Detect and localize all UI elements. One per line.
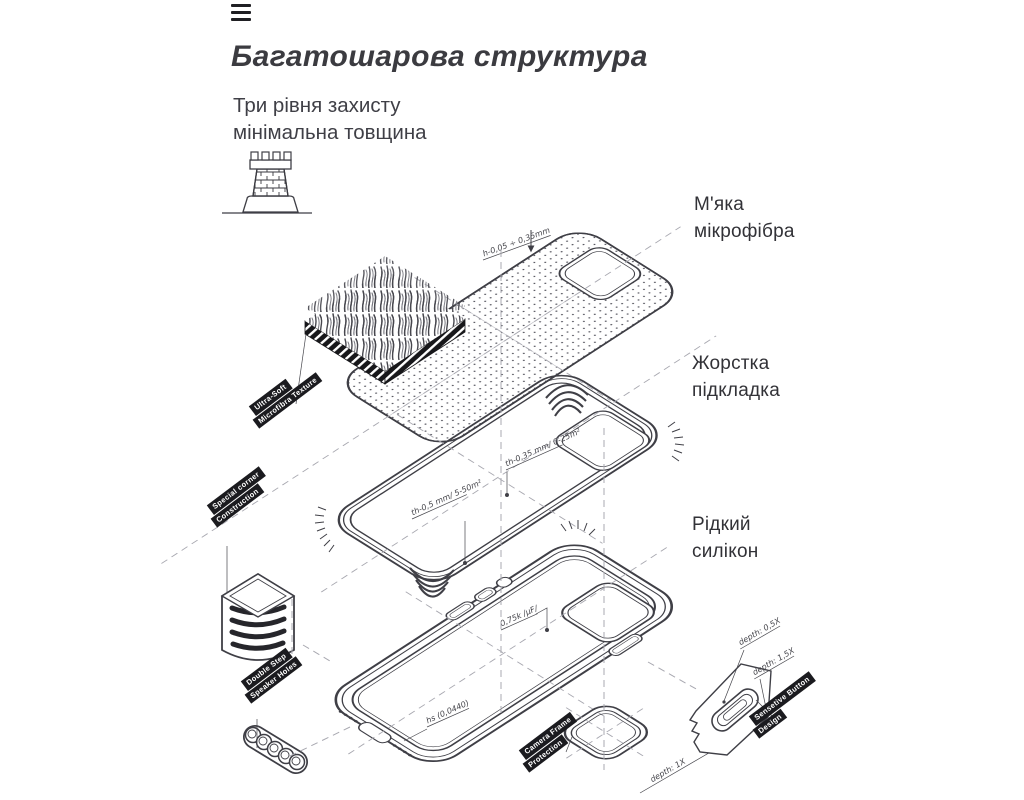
note-button-depth-1: depth: 0,5X xyxy=(735,616,783,649)
svg-text:depth: 0,5X: depth: 0,5X xyxy=(737,616,782,647)
detail-speaker-strip xyxy=(246,719,305,770)
case-button-cutouts xyxy=(444,576,515,622)
note-case-buttons: 0,75k /µF/ xyxy=(497,603,541,630)
note-shell-thickness: th-0,5 mm/ 5-50m² xyxy=(408,478,484,519)
detail-corner-construction xyxy=(222,546,294,660)
svg-text:depth: 1,5X: depth: 1,5X xyxy=(751,646,796,677)
case-corner-hatch xyxy=(561,520,595,535)
fortress-icon xyxy=(222,152,312,213)
exploded-case-diagram: h-0,05 ÷ 0,35mm xyxy=(0,0,1024,800)
svg-text:hs (0,0440): hs (0,0440) xyxy=(425,698,471,725)
layer-silicone-case: 0,75k /µF/ hs (0,0440) xyxy=(250,485,768,800)
detail-sensitive-button: depth: 0,5X depth: 1,5X xyxy=(690,616,797,755)
layer-microfiber-sheet: h-0,05 ÷ 0,35mm xyxy=(66,167,781,627)
note-ring-depth: depth: 1X xyxy=(649,757,688,785)
svg-text:th-0,5 mm/ 5-50m²: th-0,5 mm/ 5-50m² xyxy=(410,478,484,518)
svg-text:0,75k /µF/: 0,75k /µF/ xyxy=(499,603,540,628)
note-case-bottom: hs (0,0440) xyxy=(423,698,471,727)
svg-text:depth: 1X: depth: 1X xyxy=(649,757,688,785)
note-button-depth-2: depth: 1,5X xyxy=(749,646,797,679)
